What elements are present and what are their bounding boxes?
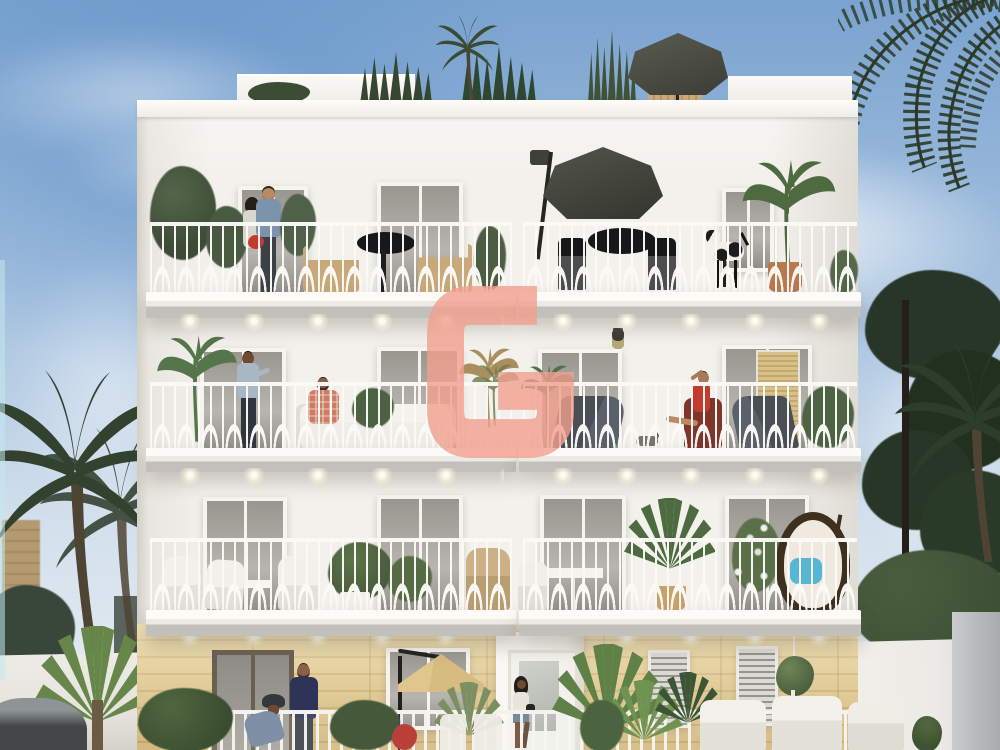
balcony-f1-left-slab bbox=[146, 610, 516, 636]
hanging-plant-leaves bbox=[776, 656, 814, 696]
balcony-f3-left-railing bbox=[150, 222, 512, 296]
balcony-f2-right-downlights bbox=[531, 468, 849, 486]
balcony-f3-right-railing bbox=[523, 222, 857, 296]
terrace-sofa-2 bbox=[772, 696, 842, 750]
balcony-f3-left-downlights bbox=[158, 314, 504, 332]
girl-face bbox=[517, 680, 526, 689]
cyclist-torso bbox=[242, 708, 285, 749]
balcony-f2-left-railing bbox=[150, 382, 512, 452]
cyclist bbox=[238, 694, 298, 750]
architectural-rendering: G bbox=[0, 0, 1000, 750]
balcony-f2-left-downlights bbox=[158, 468, 504, 486]
balcony-f1-right-railing bbox=[523, 538, 857, 614]
palm-right-mid bbox=[880, 330, 1000, 570]
garden-plants-door bbox=[580, 700, 624, 750]
garden-bush-left bbox=[138, 688, 233, 750]
terrace-sofa-1 bbox=[700, 700, 766, 750]
garden-chairs-white bbox=[440, 714, 502, 750]
balcony-f1-right-slab bbox=[519, 610, 861, 636]
balcony-f2-right-railing bbox=[523, 382, 857, 452]
palm-fronds-top-right bbox=[838, 0, 1000, 219]
wall-corner-shadow-right bbox=[952, 612, 1000, 750]
wall-lantern-f2 bbox=[612, 331, 624, 349]
terrace-plant-pot bbox=[912, 716, 942, 750]
roof-palm-tall bbox=[420, 12, 515, 107]
left-edge-artifact bbox=[0, 260, 5, 680]
balcony-f3-right-downlights bbox=[531, 314, 849, 332]
terrace-sofa-3 bbox=[848, 702, 904, 750]
balcony-f1-left-railing bbox=[150, 538, 512, 614]
roof-parapet bbox=[137, 100, 858, 117]
fan-palm-left-trunk bbox=[92, 700, 103, 750]
